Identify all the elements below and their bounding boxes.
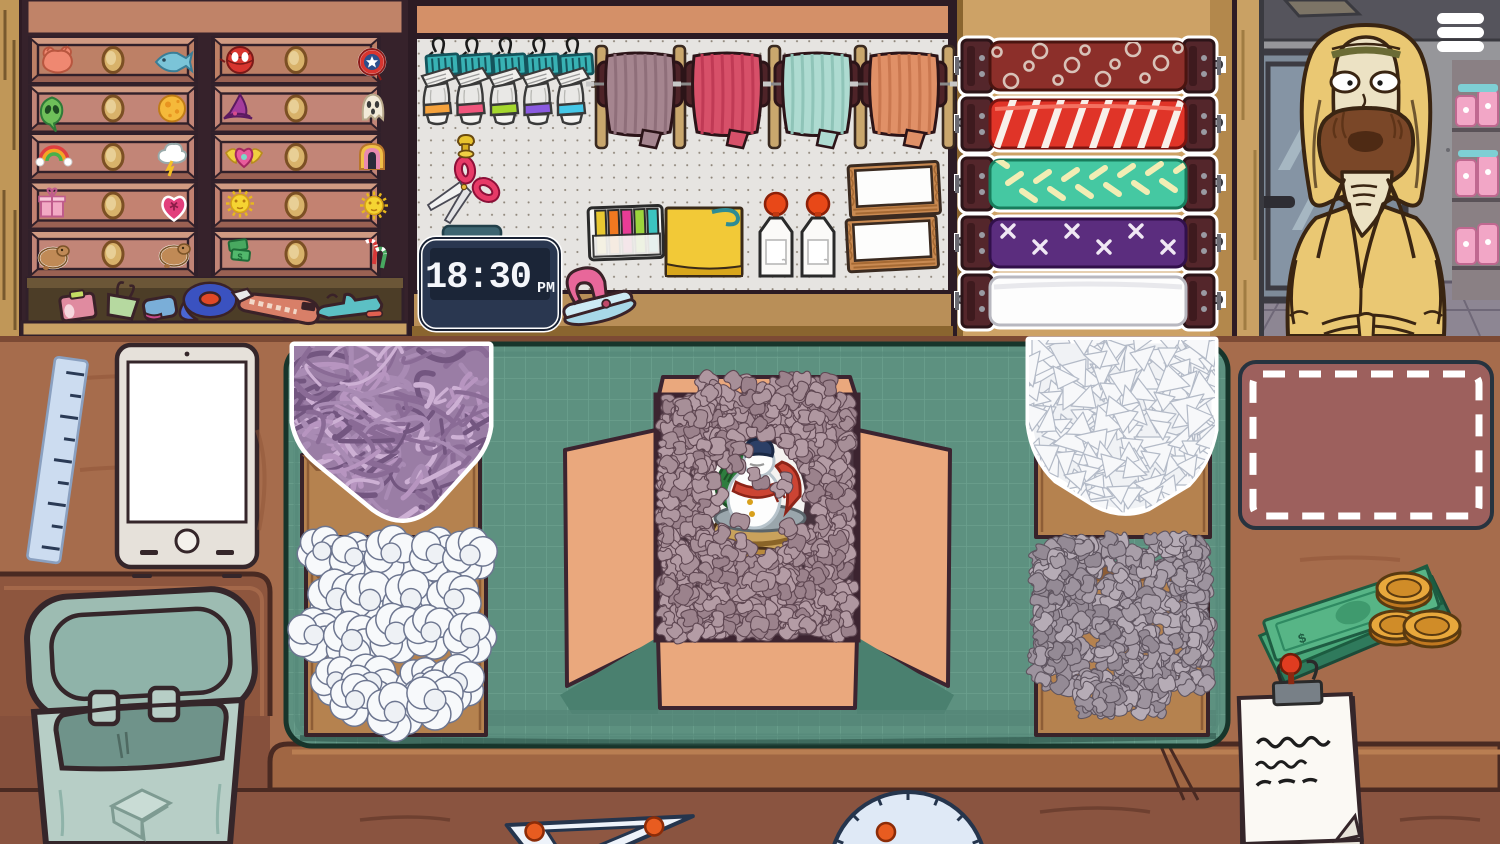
svg-text:PM: PM [537, 280, 555, 297]
svg-text:$: $ [237, 252, 242, 262]
svg-text:18:30: 18:30 [425, 257, 531, 299]
